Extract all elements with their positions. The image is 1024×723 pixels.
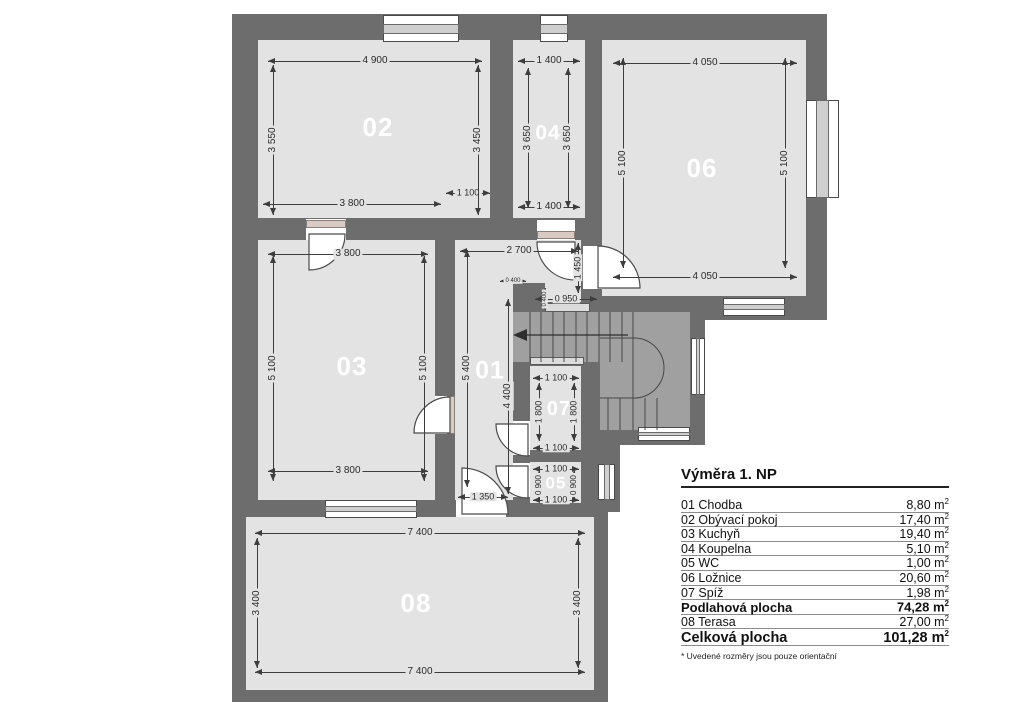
door-opening-hall-wc [513, 463, 530, 497]
dimension: 3 800 [268, 249, 428, 259]
window-stairs-east [691, 338, 705, 395]
dimension-label: 4 050 [690, 58, 719, 69]
dimension-label: 5 400 [462, 353, 473, 382]
room-label-08: 08 [401, 590, 432, 616]
dimension-label: 3 400 [573, 588, 584, 617]
legend-row-label: 03 Kuchyň [681, 528, 740, 541]
legend-footnote: * Uvedené rozměry jsou pouze orientační [681, 651, 949, 661]
dimension: 1 400 [518, 56, 580, 66]
stairs-lower-flight [600, 362, 690, 430]
door-opening-hall-pantry [513, 421, 530, 455]
dimension: 1 800 [534, 383, 544, 441]
dimension: 0 400 [540, 288, 550, 310]
dimension: 3 800 [263, 199, 441, 209]
dimension-label: 1 100 [543, 443, 570, 452]
dimension-label: 3 800 [333, 466, 362, 477]
window-bathroom-north [540, 15, 568, 42]
dimension: 3 400 [573, 538, 583, 668]
dimension-label: 1 400 [534, 202, 563, 213]
dimension: 7 400 [255, 528, 585, 538]
dimension: 1 800 [569, 383, 579, 441]
window-kitchen-terrace [325, 500, 417, 518]
dimension-label: 5 100 [419, 353, 430, 382]
dimension-label: 1 450 [573, 255, 582, 282]
dimension: 1 100 [533, 443, 579, 453]
legend-row-label: 01 Chodba [681, 499, 742, 512]
legend-row: Podlahová plocha74,28 m2 [681, 600, 949, 615]
dimension-label: 7 400 [405, 667, 434, 678]
dimension: 4 050 [613, 272, 797, 282]
dimension-label: 0 950 [553, 294, 580, 303]
dimension: 3 550 [268, 65, 278, 215]
dimension-label: 1 100 [543, 495, 570, 504]
dimension-label: 3 550 [268, 125, 279, 154]
dimension-label: 2 700 [504, 246, 533, 257]
pantry-top-niche [530, 357, 584, 365]
dimension: 3 800 [268, 466, 428, 476]
dimension-label: 5 100 [780, 148, 791, 177]
window-stairs-south [638, 427, 690, 441]
window-bedroom-south [723, 298, 785, 316]
dimension: 3 450 [473, 65, 483, 215]
stairs-upper-flight [513, 312, 690, 362]
legend-row-label: 05 WC [681, 557, 719, 570]
dimension-label: 1 800 [534, 399, 543, 426]
dimension: 1 450 [573, 243, 583, 293]
legend-rows: 01 Chodba8,80 m202 Obývací pokoj17,40 m2… [681, 498, 949, 646]
window-living-room-north [383, 15, 459, 42]
dimension: 5 100 [780, 58, 790, 268]
legend-row-area: 74,28 m2 [897, 600, 949, 613]
dimension: 5 100 [419, 256, 429, 481]
dimension: 5 400 [462, 250, 472, 487]
room-label-05: 05 [546, 475, 567, 492]
dimension: 4 900 [268, 56, 482, 66]
dimension-label: 3 800 [337, 199, 366, 210]
dimension: 1 100 [533, 373, 579, 383]
legend-row-label: Celková plocha [681, 631, 787, 646]
dimension-label: 3 650 [523, 123, 534, 152]
legend-row-area: 1,00 m2 [906, 556, 949, 570]
dimension: 0 900 [534, 471, 544, 499]
legend-row: 08 Terasa27,00 m2 [681, 615, 949, 630]
door-lintel-kitchen-hall [447, 396, 455, 434]
room-label-02: 02 [363, 114, 394, 140]
dimension: 4 050 [613, 58, 797, 68]
dimension-label: 0 900 [570, 473, 578, 497]
door-lintel-living-kitchen [306, 220, 346, 228]
room-label-03: 03 [337, 353, 368, 379]
dimension: 5 100 [618, 58, 628, 268]
room-label-01: 01 [475, 359, 505, 384]
dimension-label: 4 400 [503, 381, 514, 410]
dimension: 5 100 [268, 256, 278, 481]
window-bedroom-east [806, 100, 839, 198]
dimension: 1 350 [458, 492, 508, 502]
door-opening-hall-bedroom [583, 246, 603, 289]
legend-row: 07 Spíž1,98 m2 [681, 586, 949, 601]
legend-row-area: 19,40 m2 [899, 527, 949, 541]
door-opening-hall-terrace [456, 500, 506, 517]
dimension-label: 7 400 [405, 528, 434, 539]
dimension-label: 1 400 [534, 56, 563, 67]
dimension-label: 3 450 [473, 125, 484, 154]
dimension: 4 400 [503, 299, 513, 494]
legend-row-label: 08 Terasa [681, 616, 736, 629]
dimension-label: 0 400 [542, 289, 548, 308]
dimension: 1 100 [446, 188, 490, 198]
legend-row: 05 WC1,00 m2 [681, 556, 949, 571]
dimension: 3 650 [523, 68, 533, 208]
dimension-label: 3 400 [252, 588, 263, 617]
legend-row-area: 101,28 m2 [883, 630, 949, 645]
door-lintel-bathroom-hall [537, 231, 575, 239]
legend-row-area: 20,60 m2 [899, 571, 949, 585]
legend-row: 04 Koupelna5,10 m2 [681, 542, 949, 557]
legend-row-area: 1,98 m2 [906, 586, 949, 600]
dimension: 3 400 [252, 538, 262, 668]
dimension: 7 400 [255, 667, 585, 677]
dimension: 0 400 [500, 276, 526, 286]
dimension-label: 5 100 [618, 148, 629, 177]
legend-title: Výměra 1. NP [681, 466, 949, 488]
dimension-label: 1 100 [543, 373, 570, 382]
dimension: 3 650 [563, 68, 573, 208]
legend-row-label: Podlahová plocha [681, 601, 792, 614]
floorplan-page: 0204060301070508 4 9001 4004 0501 1003 8… [0, 0, 1024, 723]
stairs-top-niche [545, 303, 590, 312]
legend-row-label: 07 Spíž [681, 587, 723, 600]
legend-row-area: 8,80 m2 [906, 498, 949, 512]
legend-row-label: 06 Ložnice [681, 572, 741, 585]
dimension-label: 1 100 [543, 464, 570, 473]
room-label-06: 06 [687, 155, 718, 181]
dimension-label: 4 900 [360, 56, 389, 67]
legend-row-area: 17,40 m2 [899, 513, 949, 527]
legend-row-label: 04 Koupelna [681, 543, 751, 556]
dimension-label: 4 050 [690, 272, 719, 283]
dimension-label: 5 100 [268, 353, 279, 382]
dimension-label: 1 350 [470, 492, 497, 501]
legend-row-area: 27,00 m2 [899, 615, 949, 629]
legend-row: 06 Ložnice20,60 m2 [681, 571, 949, 586]
legend-row-area: 5,10 m2 [906, 542, 949, 556]
legend-row: 01 Chodba8,80 m2 [681, 498, 949, 513]
dimension-label: 3 650 [563, 123, 574, 152]
dimension-label: 0 900 [535, 473, 543, 497]
room-label-04: 04 [535, 123, 560, 144]
dimension: 2 700 [460, 246, 578, 256]
area-legend: Výměra 1. NP 01 Chodba8,80 m202 Obývací … [681, 466, 949, 661]
dimension-label: 1 800 [569, 399, 578, 426]
legend-row: Celková plocha101,28 m2 [681, 629, 949, 646]
dimension: 0 900 [569, 471, 579, 499]
legend-row: 02 Obývací pokoj17,40 m2 [681, 513, 949, 528]
legend-row: 03 Kuchyň19,40 m2 [681, 527, 949, 542]
dimension-label: 3 800 [333, 249, 362, 260]
legend-row-label: 02 Obývací pokoj [681, 514, 778, 527]
dimension-label: 0 400 [503, 278, 522, 284]
window-wc-east [598, 464, 615, 500]
